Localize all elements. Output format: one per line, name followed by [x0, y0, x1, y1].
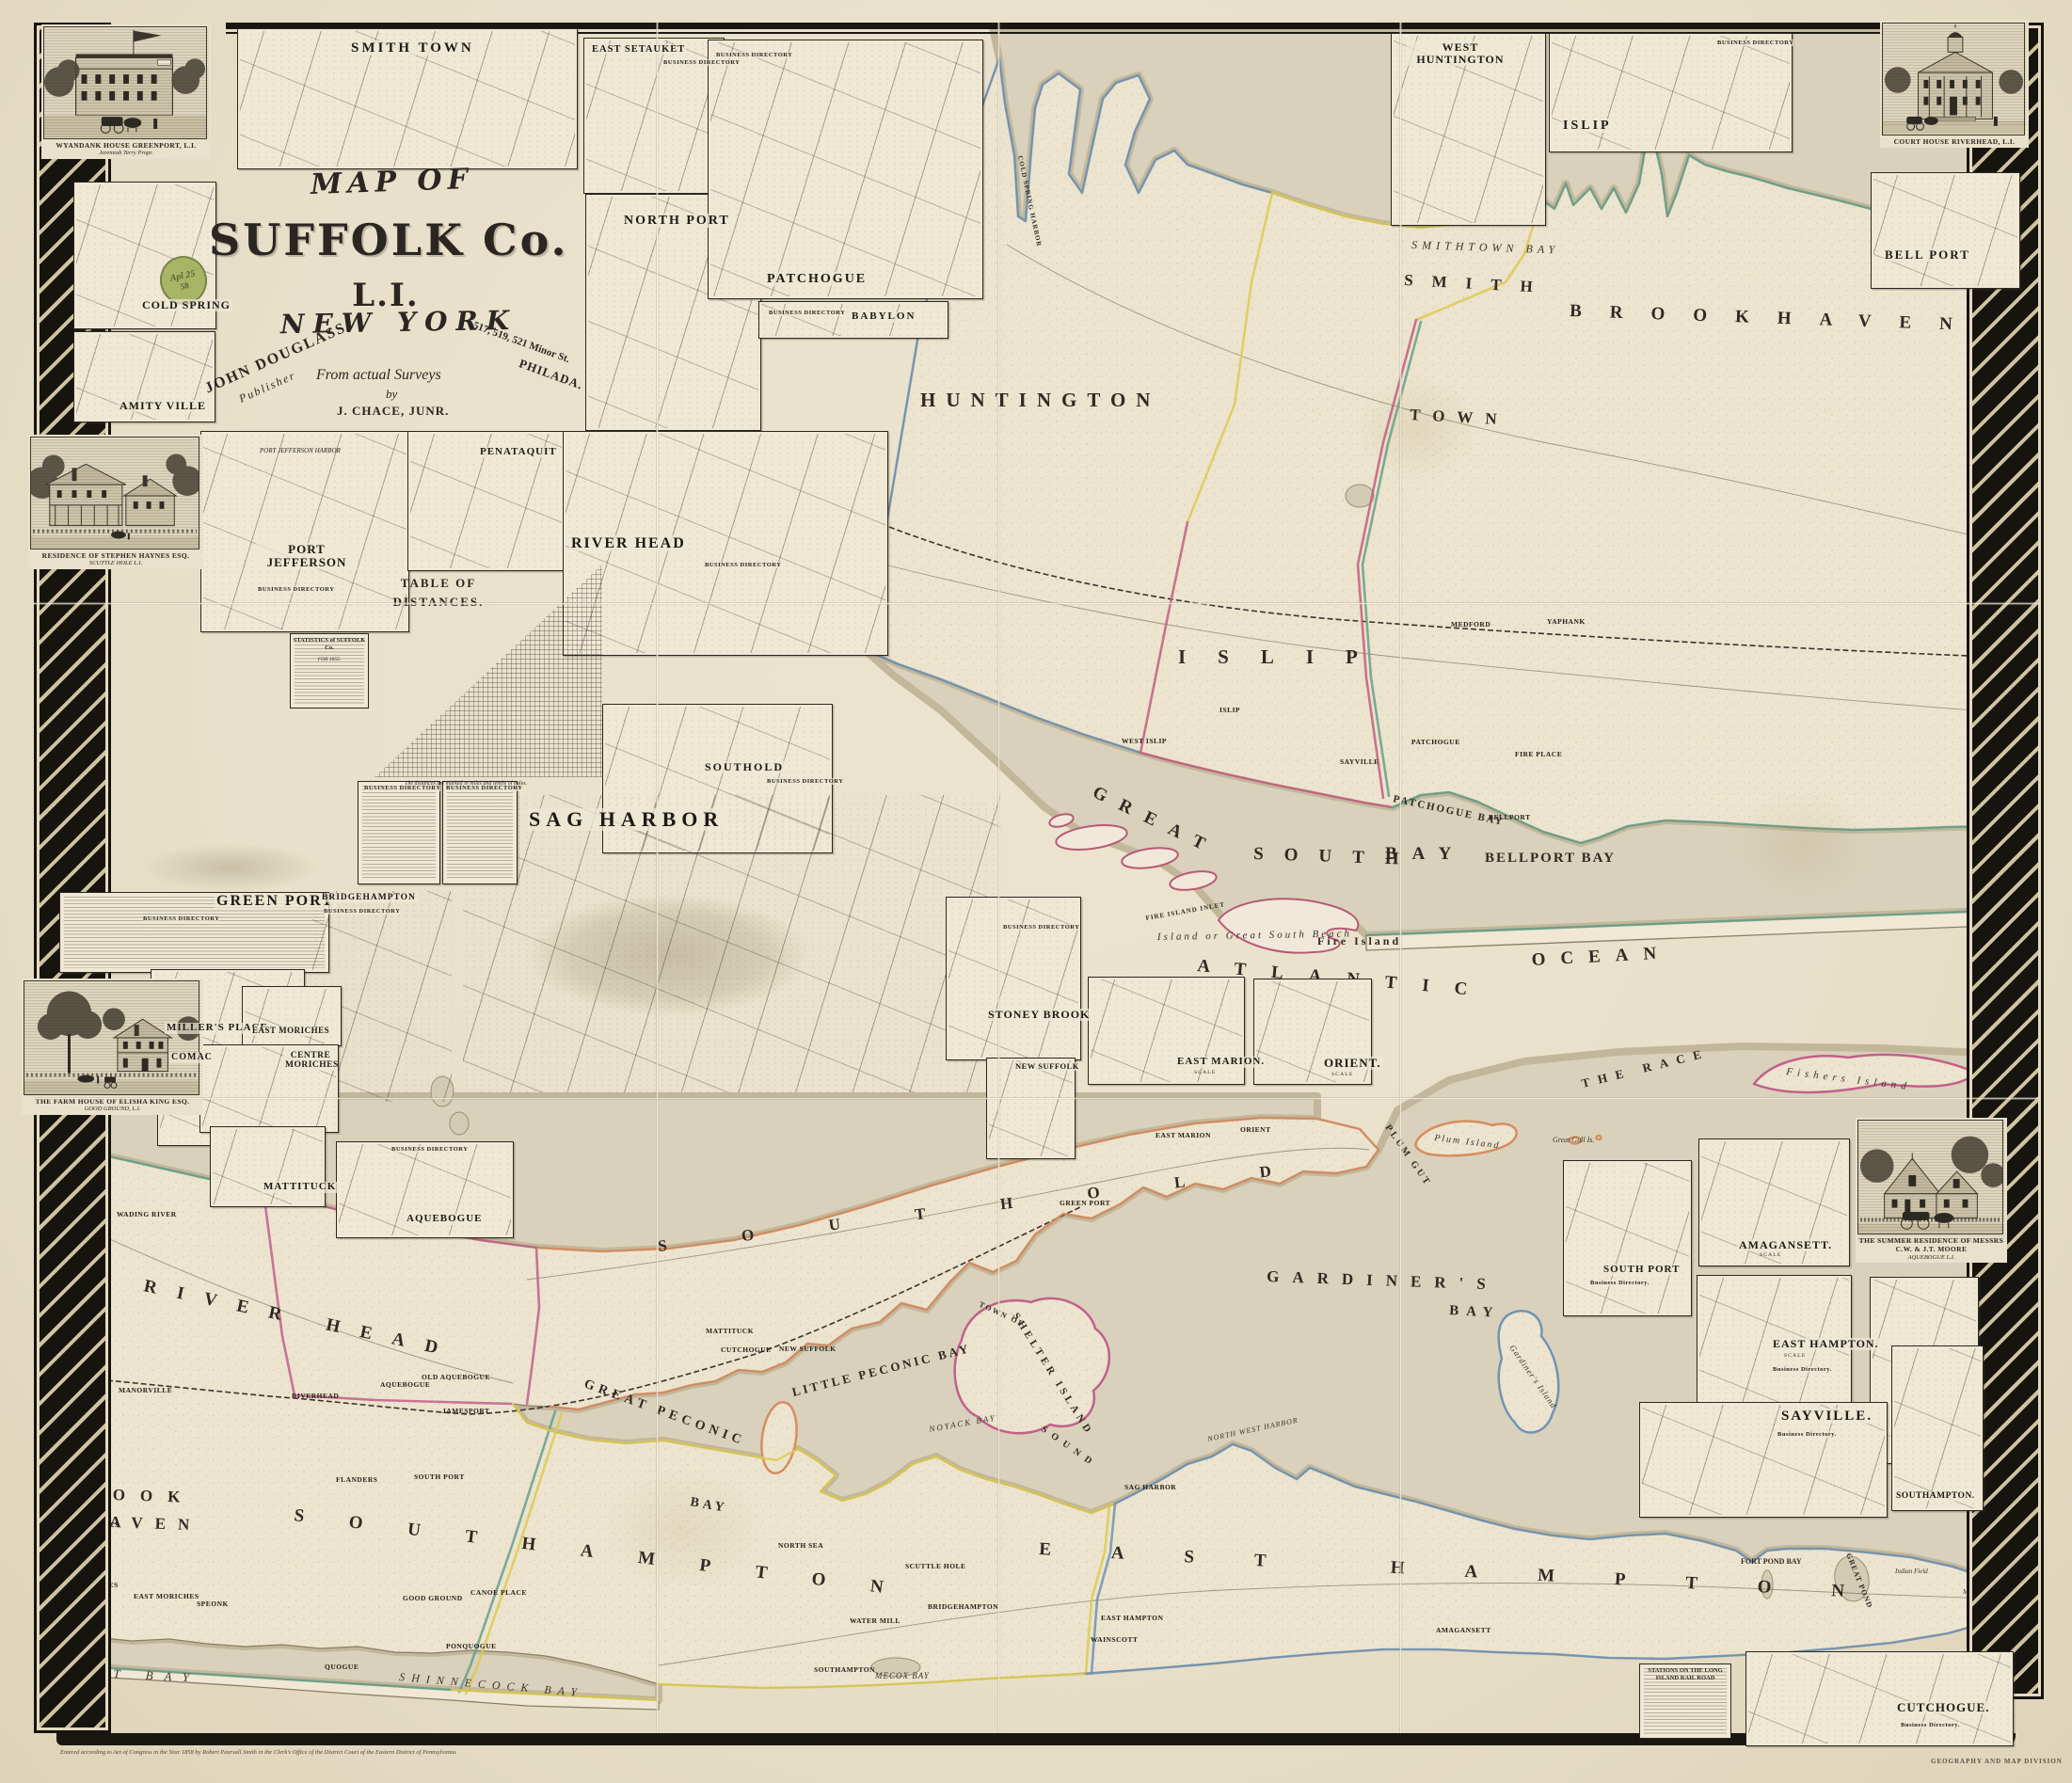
illustration-subcaption: GOOD GROUND, L.I.: [24, 1106, 201, 1112]
inset-east-setauket: EAST SETAUKETBUSINESS DIRECTORY: [583, 38, 725, 194]
illustration-wyandank-house: WYANDANK HOUSE GREENPORT, L.I. Jeremiah …: [41, 24, 211, 159]
inset-label-babylon: BABYLON: [850, 311, 917, 323]
directory-heading: Business Directory.: [1901, 1722, 1960, 1728]
table-of-distances-title: TABLE OF DISTANCES.: [384, 574, 493, 611]
inset-cold-spring: COLD SPRING: [73, 182, 216, 329]
illustration-caption: RESIDENCE OF STEPHEN HAYNES ESQ.: [30, 551, 201, 560]
inset-label-smith-town: SMITH TOWN: [349, 40, 476, 56]
inset-orient: ORIENT.SCALE: [1253, 979, 1372, 1085]
inset-amagansett: AMAGANSETT.SCALE: [1698, 1138, 1850, 1266]
copyright-stamp-year: 58: [180, 280, 190, 292]
title-map-of: MAP OF: [310, 163, 470, 201]
directory-heading: BUSINESS DIRECTORY: [663, 59, 740, 66]
inset-label-penataquit: PENATAQUIT: [478, 447, 559, 458]
inset-amity-ville: AMITY VILLE: [73, 331, 215, 422]
statistics-table: STATISTICS of SUFFOLK Co. FOR 1855.: [290, 633, 369, 708]
inset-label-sayville: SAYVILLE.: [1779, 1409, 1874, 1424]
surveyor-name: J. CHACE, JUNR.: [337, 404, 449, 419]
inset-south-port: SOUTH PORTBusiness Directory.: [1563, 1160, 1692, 1316]
inset-label-bridgehampton: BRIDGEHAMPTON: [320, 893, 418, 902]
inset-east-marion: EAST MARION.SCALE: [1088, 977, 1245, 1085]
inset-label-east-hampton: EAST HAMPTON.: [1771, 1338, 1881, 1350]
inset-patchogue: PATCHOGUEBUSINESS DIRECTORY: [708, 40, 983, 299]
directory-heading: BUSINESS DIRECTORY: [705, 562, 781, 568]
fold-crease-horizontal-1: [34, 602, 2038, 605]
inset-label-cold-spring: COLD SPRING: [140, 299, 232, 311]
library-division-stamp: GEOGRAPHY AND MAP DIVISION: [1931, 1758, 2063, 1765]
inset-label-river-head: RIVER HEAD: [569, 535, 688, 551]
inset-cutchogue: CUTCHOGUE.Business Directory.: [1745, 1651, 2014, 1746]
surveys-line: From actual Surveys: [316, 367, 441, 384]
inset-southampton-village: SOUTHAMPTON.: [1891, 1345, 1984, 1511]
directory-heading: BUSINESS DIRECTORY: [767, 778, 843, 785]
inset-label-southold: SOUTHOLD: [703, 761, 786, 773]
directory-heading: Business Directory.: [1777, 1431, 1837, 1438]
inset-penataquit: PENATAQUIT: [407, 431, 565, 571]
surveys-by: by: [386, 387, 397, 402]
inset-centre-moriches: CENTRE MORICHES: [199, 1044, 339, 1133]
inset-green-port: GREEN PORTBUSINESS DIRECTORY: [59, 892, 329, 973]
inset-label-new-suffolk: NEW SUFFOLK: [1013, 1062, 1081, 1071]
inset-sublabel: PORT JEFFERSON HARBOR: [260, 447, 341, 454]
inset-label-cutchogue: CUTCHOGUE.: [1895, 1701, 1991, 1714]
inset-label-amity-ville: AMITY VILLE: [118, 400, 208, 412]
map-sheet: HUNTINGTONSMITHTOWNBROOKHAVENISLIPSMITHT…: [0, 0, 2072, 1783]
haynes-residence-engraving: [30, 437, 199, 549]
inset-label-north-port: NORTH PORT: [622, 214, 732, 228]
inset-sag-harbor: SAG HARBOR: [461, 793, 1002, 1094]
statistics-title: STATISTICS of SUFFOLK Co.: [291, 637, 368, 652]
directory-heading: BUSINESS DIRECTORY: [391, 1146, 468, 1153]
directory-heading: BUSINESS DIRECTORY: [143, 915, 219, 922]
directory-heading: BUSINESS DIRECTORY: [716, 52, 792, 58]
inset-label-east-marion: EAST MARION.: [1175, 1057, 1267, 1068]
inset-west-huntington: WEST HUNTINGTON: [1391, 33, 1546, 226]
inset-east-moriches: EAST MORICHES: [242, 986, 342, 1046]
directory-heading: Business Directory.: [1590, 1280, 1650, 1286]
inset-label-mattituck: MATTITUCK: [262, 1182, 338, 1193]
fold-crease-vertical-2: [997, 23, 1000, 1733]
inset-maps: SMITH TOWNEAST SETAUKETBUSINESS DIRECTOR…: [0, 0, 2072, 1783]
inset-label-green-port: GREEN PORT: [215, 893, 336, 909]
illustration-king-farm-house: THE FARM HOUSE OF ELISHA KING ESQ. GOOD …: [22, 979, 203, 1115]
copyright-imprint: Entered according to Act of Congress in …: [60, 1749, 457, 1756]
inset-scale-note: SCALE: [1760, 1252, 1781, 1258]
illustration-subcaption: SCUTTLE HOLE L.I.: [30, 560, 201, 566]
directory-heading: BUSINESS DIRECTORY: [258, 586, 334, 593]
inset-sag-directory-1: BUSINESS DIRECTORY: [358, 781, 440, 884]
illustration-haynes-residence: RESIDENCE OF STEPHEN HAYNES ESQ. SCUTTLE…: [28, 435, 203, 569]
illustration-caption: THE SUMMER RESIDENCE OF MESSRS C.W. & J.…: [1857, 1236, 2005, 1254]
directory-heading: BUSINESS DIRECTORY: [769, 310, 845, 316]
inset-label-bell-port: BELL PORT: [1883, 248, 1972, 262]
title-county: SUFFOLK Co.: [209, 215, 553, 265]
directory-heading: Business Directory.: [1773, 1366, 1832, 1373]
inset-sayville: SAYVILLE.Business Directory.: [1639, 1402, 1888, 1518]
inset-river-head: RIVER HEADBUSINESS DIRECTORY: [563, 431, 888, 656]
illustration-moore-residence: THE SUMMER RESIDENCE OF MESSRS C.W. & J.…: [1856, 1118, 2007, 1263]
inset-label-centre-moriches: CENTRE MORICHES: [283, 1051, 338, 1071]
inset-babylon: BABYLONBUSINESS DIRECTORY: [758, 301, 948, 339]
inset-east-hampton: EAST HAMPTON.Business Directory.SCALE: [1697, 1275, 1852, 1405]
king-farm-house-engraving: [24, 980, 199, 1095]
inset-islip-village: ISLIPBUSINESS DIRECTORY: [1549, 33, 1793, 152]
inset-label-south-port: SOUTH PORT: [1602, 1265, 1682, 1276]
inset-bell-port: BELL PORT: [1871, 172, 2020, 289]
inset-label-east-moriches: EAST MORICHES: [250, 1027, 331, 1036]
inset-label-southampton-village: SOUTHAMPTON.: [1894, 1491, 1977, 1501]
inset-scale-note: SCALE: [1784, 1353, 1806, 1359]
illustration-caption: COURT HOUSE RIVERHEAD, L.I.: [1882, 137, 2027, 146]
inset-label-amagansett: AMAGANSETT.: [1737, 1239, 1834, 1251]
inset-label-patchogue: PATCHOGUE: [765, 272, 869, 286]
stations-table: STATIONS ON THE LONG ISLAND RAIL ROAD: [1639, 1664, 1731, 1739]
statistics-subtitle: FOR 1855.: [291, 657, 368, 662]
illustration-caption: WYANDANK HOUSE GREENPORT, L.I.: [43, 141, 209, 150]
inset-label-east-setauket: EAST SETAUKET: [590, 44, 687, 55]
inset-label-aquebogue: AQUEBOGUE: [405, 1214, 485, 1225]
illustration-subcaption: AQUEBOGUE L.I.: [1857, 1254, 2005, 1261]
inset-scale-note: SCALE: [1194, 1070, 1216, 1075]
stations-title: STATIONS ON THE LONG ISLAND RAIL ROAD: [1640, 1667, 1730, 1682]
fold-crease-horizontal-2: [34, 1097, 2038, 1100]
fold-crease-vertical-3: [1399, 23, 1402, 1733]
inset-sag-directory-2: BUSINESS DIRECTORY: [442, 781, 518, 884]
wyandank-house-engraving: [43, 26, 207, 139]
inset-label-stoney-brook: STONEY BROOK: [986, 1009, 1092, 1021]
inset-label-sag-harbor: SAG HARBOR: [527, 808, 725, 831]
directory-heading: BUSINESS DIRECTORY: [1003, 924, 1079, 931]
directory-heading: BUSINESS DIRECTORY: [324, 908, 400, 915]
inset-label-west-huntington: WEST HUNTINGTON: [1407, 41, 1514, 66]
inset-mattituck: MATTITUCK: [210, 1126, 326, 1207]
court-house-engraving: [1882, 23, 2025, 135]
fold-crease-vertical-1: [656, 23, 659, 1733]
inset-label-comac: COMAC: [169, 1053, 215, 1063]
inset-aquebogue: AQUEBOGUEBUSINESS DIRECTORY: [336, 1141, 514, 1238]
inset-label-islip-village: ISLIP: [1561, 119, 1614, 133]
inset-scale-note: SCALE: [1331, 1072, 1353, 1077]
inset-label-orient: ORIENT.: [1322, 1057, 1383, 1070]
directory-heading: BUSINESS DIRECTORY: [364, 785, 440, 791]
directory-heading: BUSINESS DIRECTORY: [446, 785, 522, 791]
illustration-court-house: COURT HOUSE RIVERHEAD, L.I.: [1880, 21, 2029, 148]
moore-residence-engraving: [1857, 1120, 2003, 1234]
inset-stoney-brook: STONEY BROOKBUSINESS DIRECTORY: [946, 897, 1081, 1060]
inset-label-port-jefferson: PORT JEFFERSON: [256, 543, 358, 569]
illustration-subcaption: Jeremiah Terry Propr.: [43, 150, 209, 156]
inset-smith-town: SMITH TOWN: [237, 28, 578, 169]
directory-heading: BUSINESS DIRECTORY: [1717, 40, 1793, 46]
